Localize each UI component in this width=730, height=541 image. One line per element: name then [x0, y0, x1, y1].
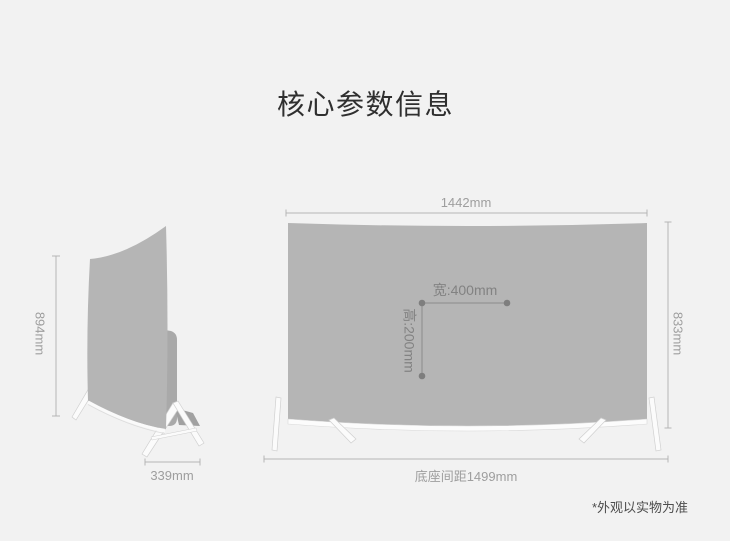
dimension-line-side-depth [145, 459, 200, 466]
appearance-disclaimer: *外观以实物为准 [548, 497, 688, 516]
front-width-dimension-label: 1442mm [396, 195, 536, 210]
vesa-height-label: 高:200mm [402, 281, 417, 401]
tv-front-view [272, 223, 661, 451]
dimension-line-side-height [52, 256, 60, 416]
tv-side-screen [87, 226, 167, 429]
vesa-dot-corner [419, 300, 426, 307]
tv-front-right-leg [649, 397, 661, 451]
page-title: 核心参数信息 [277, 89, 454, 121]
spec-diagram-canvas [0, 0, 730, 541]
tv-front-left-leg [272, 397, 281, 451]
vesa-dot-right [504, 300, 511, 307]
dimension-line-front-width [286, 210, 647, 217]
tv-side-view [72, 226, 204, 457]
vesa-dot-bottom [419, 373, 426, 380]
side-depth-dimension-label: 339mm [132, 468, 212, 483]
spec-diagram: 核心参数信息 1442mm 833mm 底座间距1499mm 宽:400mm 高… [0, 0, 730, 541]
tv-side-aframe-right-leg [173, 401, 204, 446]
dimension-line-base-distance [264, 456, 668, 463]
base-distance-dimension-label: 底座间距1499mm [366, 469, 566, 484]
front-height-dimension-label: 833mm [671, 302, 686, 366]
side-height-dimension-label: 894mm [33, 302, 48, 366]
vesa-width-label: 宽:400mm [405, 283, 525, 298]
tv-front-screen [288, 223, 647, 426]
